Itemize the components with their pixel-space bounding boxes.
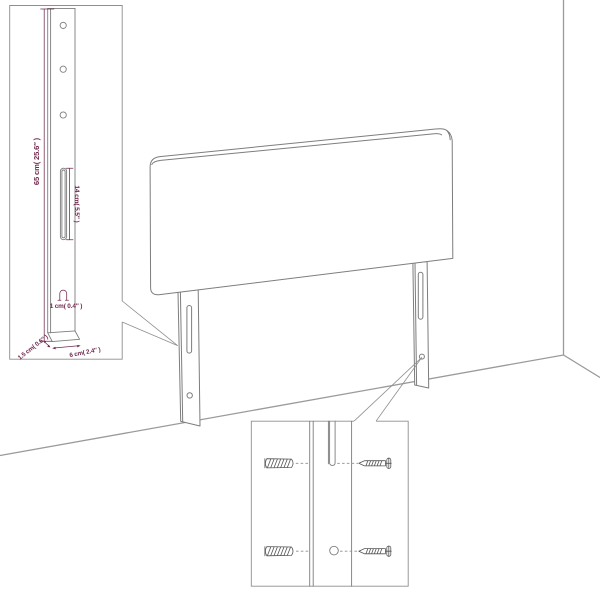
panel-face [150, 129, 453, 295]
leg-hole [60, 112, 66, 118]
product-diagram: 65 cm( 25.6″ ) 14 cm( 5.5″ ) 1 cm( 0.4″ … [0, 0, 600, 600]
leg-inset-callout-line [122, 301, 177, 346]
right-leg [413, 262, 429, 389]
leg-inset-callout-line [122, 322, 177, 346]
hole-profile-icon [60, 290, 67, 300]
leg-slot-inner [62, 170, 65, 238]
headboard-panel [150, 129, 453, 295]
arrowhead [52, 347, 56, 350]
mounting-detail-inset [251, 421, 408, 586]
callout-lines [122, 301, 422, 421]
mount-inset-callout-line [376, 357, 422, 421]
diagram-canvas: 65 cm( 25.6″ ) 14 cm( 5.5″ ) 1 cm( 0.4″ … [0, 0, 600, 600]
left-leg [178, 290, 200, 426]
foot-dimension-arrows [43, 341, 80, 350]
leg-hole [60, 66, 66, 72]
arrowhead [77, 345, 80, 348]
headboard-drawing [150, 129, 453, 426]
leg-height-label: 65 cm( 25.6″ ) [32, 137, 41, 185]
leg-detail-inset: 65 cm( 25.6″ ) 14 cm( 5.5″ ) 1 cm( 0.4″ … [10, 6, 123, 362]
leg-hole [60, 22, 66, 28]
leg-front-view [48, 8, 80, 341]
slot-length-label: 14 cm( 5.5″ ) [73, 185, 80, 222]
hole-diameter-label: 1 cm( 0.4″ ) [50, 303, 83, 310]
width-arrow-line [54, 346, 78, 348]
mount-inset-callout-line [354, 357, 422, 421]
leg-slot [60, 168, 66, 240]
leg-thickness-label: 1.5 cm( 0.6″ ) [17, 334, 50, 362]
leg-width-label: 6 cm( 2.4″ ) [69, 346, 101, 359]
dimension-annotations: 65 cm( 25.6″ ) 14 cm( 5.5″ ) 1 cm( 0.4″ … [17, 9, 102, 362]
leg-foot [48, 331, 80, 342]
